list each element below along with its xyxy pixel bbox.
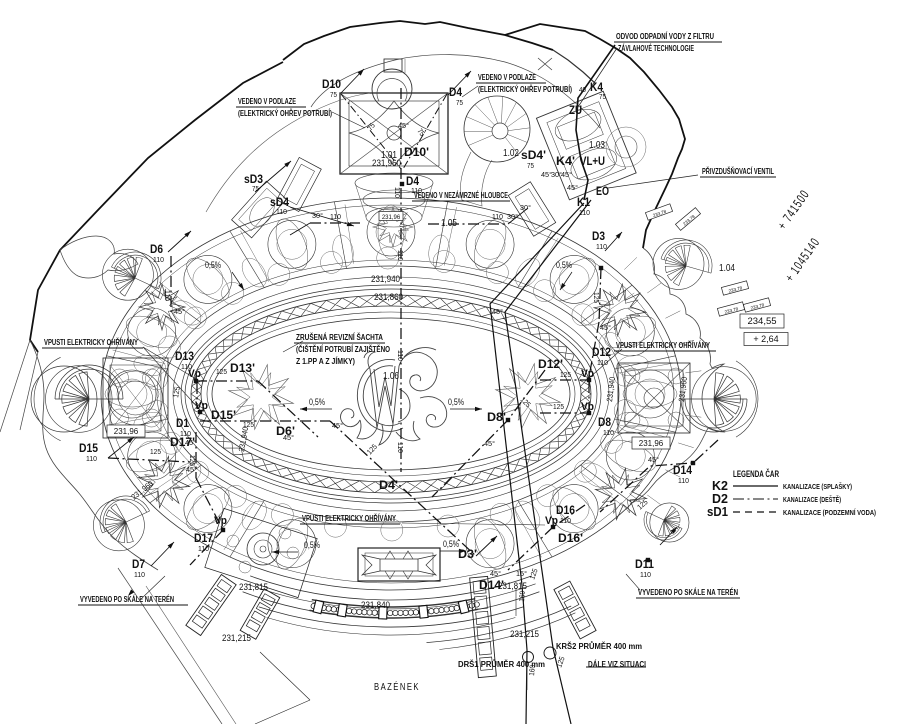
- svg-text:45°: 45°: [492, 308, 503, 316]
- svg-text:110: 110: [396, 250, 405, 261]
- svg-text:D14: D14: [673, 463, 692, 477]
- svg-text:D4': D4': [379, 478, 398, 492]
- svg-text:125: 125: [553, 402, 564, 411]
- svg-text:VYVEDENO PO SKÁLE NA TERÉN: VYVEDENO PO SKÁLE NA TERÉN: [638, 588, 738, 597]
- svg-text:KANALIZACE (PODZEMNÍ VODA): KANALIZACE (PODZEMNÍ VODA): [783, 508, 876, 517]
- svg-text:sD4': sD4': [521, 148, 546, 162]
- svg-text:75: 75: [330, 90, 337, 99]
- svg-text:Vp: Vp: [581, 401, 594, 413]
- svg-text:45°: 45°: [648, 456, 659, 464]
- svg-text:125: 125: [188, 455, 197, 466]
- svg-text:0,5%: 0,5%: [205, 260, 221, 270]
- svg-text:0,5%: 0,5%: [443, 539, 459, 549]
- svg-text:234,55: 234,55: [747, 316, 776, 327]
- svg-text:+ 2,64: + 2,64: [753, 334, 778, 344]
- svg-text:D15: D15: [79, 441, 98, 455]
- svg-text:KANALIZACE (DEŠTĚ): KANALIZACE (DEŠTĚ): [783, 495, 841, 504]
- svg-text:VEDENO V PODLAZE: VEDENO V PODLAZE: [238, 97, 296, 106]
- svg-text:Z 1.PP A Z JÍMKY): Z 1.PP A Z JÍMKY): [296, 357, 355, 366]
- svg-text:D12: D12: [592, 345, 611, 359]
- svg-text:KRŠ2 PRŮMĚR 400 mm: KRŠ2 PRŮMĚR 400 mm: [556, 641, 642, 651]
- svg-text:45°: 45°: [186, 466, 197, 474]
- svg-text:231,840: 231,840: [361, 600, 390, 610]
- svg-text:75: 75: [527, 161, 534, 170]
- svg-text:231,215: 231,215: [510, 629, 539, 639]
- svg-text:KANALIZACE (SPLAŠKY): KANALIZACE (SPLAŠKY): [783, 482, 852, 491]
- svg-text:45°: 45°: [567, 184, 578, 192]
- svg-text:DRŠ1 PRŮMĚR 400 mm: DRŠ1 PRŮMĚR 400 mm: [458, 659, 545, 669]
- svg-text:VL+U: VL+U: [580, 154, 605, 168]
- svg-text:110: 110: [198, 544, 209, 553]
- svg-text:110: 110: [678, 476, 689, 485]
- svg-text:231,96: 231,96: [382, 215, 401, 221]
- svg-text:45°: 45°: [398, 122, 409, 130]
- svg-text:110: 110: [163, 290, 172, 301]
- svg-text:30°: 30°: [520, 204, 531, 212]
- svg-text:VEDENO V PODLAZE: VEDENO V PODLAZE: [478, 73, 536, 82]
- svg-text:D13': D13': [230, 361, 255, 375]
- svg-text:D15': D15': [211, 408, 236, 422]
- svg-text:45°: 45°: [185, 439, 196, 447]
- svg-text:D3': D3': [458, 547, 477, 561]
- svg-text:(ČIŠTĚNÍ POTRUBÍ ZAJIŠTĚNO: (ČIŠTĚNÍ POTRUBÍ ZAJIŠTĚNO: [296, 345, 390, 354]
- svg-text:1.06: 1.06: [383, 370, 399, 382]
- svg-text:30°: 30°: [507, 213, 518, 221]
- svg-text:ODVOD ODPADNÍ VODY Z FILTRU: ODVOD ODPADNÍ VODY Z FILTRU: [616, 32, 714, 41]
- svg-text:D16': D16': [558, 531, 583, 545]
- svg-text:110: 110: [603, 428, 614, 437]
- svg-text:40: 40: [579, 85, 586, 94]
- svg-text:45°: 45°: [600, 324, 611, 332]
- svg-text:1.01: 1.01: [381, 149, 397, 161]
- svg-text:BAZÉNEK: BAZÉNEK: [374, 680, 420, 693]
- svg-text:110: 110: [396, 442, 405, 453]
- svg-text:1.05: 1.05: [441, 217, 457, 229]
- svg-text:D6: D6: [150, 242, 163, 256]
- svg-text:231,940: 231,940: [371, 274, 400, 284]
- svg-text:30°: 30°: [312, 212, 323, 220]
- svg-text:45°: 45°: [332, 422, 343, 430]
- svg-text:110: 110: [86, 454, 97, 463]
- svg-text:45°: 45°: [484, 440, 495, 448]
- svg-text:231,96: 231,96: [639, 439, 664, 448]
- svg-text:Vp: Vp: [195, 400, 208, 412]
- svg-text:0,5%: 0,5%: [448, 397, 464, 407]
- svg-text:1.04: 1.04: [719, 262, 735, 274]
- svg-text:110: 110: [134, 570, 145, 579]
- svg-text:D3: D3: [592, 229, 605, 243]
- svg-text:231,215: 231,215: [222, 633, 251, 643]
- svg-text:PŘIVZDUŠŇOVACÍ VENTIL: PŘIVZDUŠŇOVACÍ VENTIL: [702, 167, 774, 176]
- svg-text:K1: K1: [577, 195, 590, 209]
- svg-text:D11: D11: [635, 557, 654, 571]
- svg-text:110: 110: [640, 570, 651, 579]
- svg-text:(ELEKTRICKÝ OHŘEV POTRUBÍ): (ELEKTRICKÝ OHŘEV POTRUBÍ): [238, 109, 332, 118]
- svg-text:D1: D1: [176, 416, 189, 430]
- svg-text:110: 110: [396, 350, 405, 361]
- svg-text:D10: D10: [322, 77, 341, 91]
- svg-text:125: 125: [171, 386, 182, 398]
- svg-text:15°: 15°: [516, 570, 527, 578]
- svg-text:ZÁVLAHOVÉ TECHNOLOGIE: ZÁVLAHOVÉ TECHNOLOGIE: [618, 44, 694, 53]
- svg-text:Vp: Vp: [581, 368, 594, 380]
- svg-text:45°: 45°: [174, 308, 185, 316]
- svg-text:LEGENDA ČAR: LEGENDA ČAR: [733, 468, 779, 480]
- svg-text:110: 110: [153, 255, 164, 264]
- svg-text:125: 125: [560, 370, 571, 379]
- svg-text:Vp: Vp: [545, 515, 558, 527]
- svg-text:sD1: sD1: [707, 504, 728, 519]
- svg-text:125: 125: [216, 367, 227, 376]
- svg-text:ZU: ZU: [569, 103, 582, 117]
- svg-text:125: 125: [592, 292, 601, 303]
- svg-text:D17: D17: [194, 531, 213, 545]
- svg-text:VYVEDENO PO SKÁLE NA TERÉN: VYVEDENO PO SKÁLE NA TERÉN: [80, 595, 174, 604]
- svg-text:1.02: 1.02: [503, 147, 519, 159]
- svg-text:110: 110: [180, 429, 191, 438]
- svg-text:110: 110: [597, 358, 608, 367]
- svg-text:VPUSTI ELEKTRICKY OHŘÍVÁNY: VPUSTI ELEKTRICKY OHŘÍVÁNY: [302, 514, 396, 523]
- svg-text:ZRUŠENÁ REVIZNÍ ŠACHTA: ZRUŠENÁ REVIZNÍ ŠACHTA: [296, 333, 383, 342]
- svg-text:110: 110: [579, 208, 590, 217]
- svg-text:231,860: 231,860: [374, 292, 403, 302]
- svg-text:45°: 45°: [490, 570, 501, 578]
- svg-text:Vp: Vp: [214, 515, 227, 527]
- svg-text:D8': D8': [487, 410, 506, 424]
- svg-text:D10': D10': [404, 145, 429, 159]
- svg-text:D16: D16: [556, 503, 575, 517]
- svg-text:D7: D7: [132, 557, 145, 571]
- svg-text:K4': K4': [556, 154, 575, 168]
- svg-text:VPUSTI ELEKTRICKY OHŘÍVÁNY: VPUSTI ELEKTRICKY OHŘÍVÁNY: [616, 341, 710, 350]
- svg-text:0,5%: 0,5%: [309, 397, 325, 407]
- svg-text:110: 110: [393, 187, 402, 198]
- svg-text:EO: EO: [596, 184, 609, 198]
- svg-text:231,815: 231,815: [498, 581, 527, 591]
- svg-text:0,5%: 0,5%: [304, 540, 320, 550]
- svg-text:231,96: 231,96: [114, 427, 139, 436]
- svg-text:D8: D8: [598, 415, 611, 429]
- svg-text:75: 75: [599, 92, 606, 101]
- svg-text:DÁLE VIZ SITUACI: DÁLE VIZ SITUACI: [588, 660, 646, 669]
- svg-text:110: 110: [596, 242, 607, 251]
- svg-text:110: 110: [492, 212, 503, 221]
- svg-text:110: 110: [276, 207, 287, 216]
- svg-text:30°: 30°: [551, 171, 562, 179]
- svg-text:D12': D12': [538, 357, 563, 371]
- svg-text:45°: 45°: [561, 171, 572, 179]
- svg-text:160: 160: [517, 590, 527, 602]
- svg-text:VEDENO V NEZÁMRZNÉ HLOUBCE: VEDENO V NEZÁMRZNÉ HLOUBCE: [414, 191, 508, 200]
- svg-text:75: 75: [252, 184, 259, 193]
- svg-text:(ELEKTRICKÝ OHŘEV POTRUBÍ): (ELEKTRICKÝ OHŘEV POTRUBÍ): [478, 85, 572, 94]
- svg-text:1.03: 1.03: [589, 139, 605, 151]
- svg-text:D4: D4: [449, 85, 462, 99]
- svg-text:D13: D13: [175, 349, 194, 363]
- svg-text:231,815: 231,815: [239, 582, 268, 592]
- svg-text:110: 110: [560, 516, 571, 525]
- svg-text:125: 125: [150, 447, 161, 456]
- svg-text:0,5%: 0,5%: [556, 260, 572, 270]
- svg-text:Vp: Vp: [188, 368, 201, 380]
- svg-text:45°: 45°: [283, 434, 294, 442]
- svg-text:110: 110: [330, 212, 341, 221]
- svg-text:VPUSTI ELEKTRICKY OHŘÍVÁNY: VPUSTI ELEKTRICKY OHŘÍVÁNY: [44, 338, 138, 347]
- svg-text:75: 75: [456, 98, 463, 107]
